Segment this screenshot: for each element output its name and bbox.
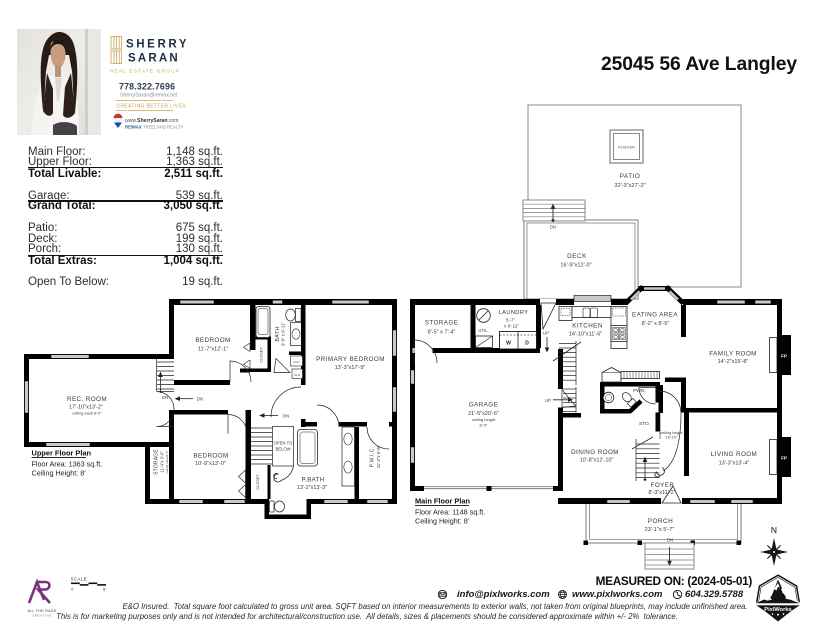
svg-text:DN: DN xyxy=(197,397,203,402)
svg-text:DN: DN xyxy=(283,414,289,419)
svg-text:8'-5" x 7'-4": 8'-5" x 7'-4" xyxy=(428,330,456,336)
svg-text:DN: DN xyxy=(667,538,673,543)
svg-text:16'-10": 16'-10" xyxy=(666,436,678,440)
svg-text:N: N xyxy=(771,525,777,535)
svg-text:D: D xyxy=(525,341,529,347)
svg-text:0': 0' xyxy=(71,588,74,592)
svg-text:FP: FP xyxy=(781,354,787,359)
svg-text:OPEN TO: OPEN TO xyxy=(274,441,293,446)
svg-text:LAUNDRY: LAUNDRY xyxy=(499,310,529,316)
svg-text:LIVING ROOM: LIVING ROOM xyxy=(711,451,757,458)
svg-text:P.W.I.C.: P.W.I.C. xyxy=(370,447,376,468)
svg-text:FOYER: FOYER xyxy=(651,482,675,489)
svg-text:BEDROOM: BEDROOM xyxy=(193,453,228,460)
svg-text:11'-3"x 5'-8": 11'-3"x 5'-8" xyxy=(376,445,381,468)
svg-text:Upper Floor Plan: Upper Floor Plan xyxy=(32,449,92,458)
svg-text:8': 8' xyxy=(103,588,106,592)
svg-text:PLANTER: PLANTER xyxy=(618,146,635,150)
svg-text:8'-3"x11'-2": 8'-3"x11'-2" xyxy=(648,490,675,496)
svg-text:DN: DN xyxy=(550,225,556,230)
svg-text:Ceiling Height: 8': Ceiling Height: 8' xyxy=(415,517,470,526)
svg-text:14'-2"x15'-8": 14'-2"x15'-8" xyxy=(718,359,749,365)
svg-text:11'-4"x 3'-0": 11'-4"x 3'-0" xyxy=(160,451,165,473)
svg-text:KITCHEN: KITCHEN xyxy=(572,323,602,330)
svg-text:EATING AREA: EATING AREA xyxy=(632,312,678,319)
svg-text:DN: DN xyxy=(162,395,168,400)
svg-text:REC. ROOM: REC. ROOM xyxy=(67,396,107,403)
svg-text:23'-1"x 5'-7": 23'-1"x 5'-7" xyxy=(645,527,675,533)
svg-text:W: W xyxy=(506,341,511,347)
svg-text:STORAGE: STORAGE xyxy=(425,320,458,327)
svg-text:14'-10"x11'-6": 14'-10"x11'-6" xyxy=(569,332,602,338)
svg-text:CLOSET: CLOSET xyxy=(260,347,264,363)
svg-text:9'-9" x 6'-11": 9'-9" x 6'-11" xyxy=(281,322,286,346)
svg-text:BELOW: BELOW xyxy=(275,447,290,452)
svg-text:DECK: DECK xyxy=(567,253,587,260)
svg-text:ALL THE RAGE: ALL THE RAGE xyxy=(27,609,56,613)
svg-text:P.BATH: P.BATH xyxy=(302,477,325,484)
svg-text:ceiling vault 8'-0": ceiling vault 8'-0" xyxy=(165,450,169,473)
svg-text:CLO: CLO xyxy=(294,373,301,377)
svg-text:PWD.: PWD. xyxy=(633,388,646,394)
svg-text:13'-3"x17'-9": 13'-3"x17'-9" xyxy=(335,365,366,371)
svg-text:SCALE: SCALE xyxy=(71,577,87,582)
svg-text:DINING ROOM: DINING ROOM xyxy=(571,449,619,456)
svg-text:STO.: STO. xyxy=(639,421,650,427)
svg-text:PORCH: PORCH xyxy=(648,518,674,525)
svg-text:ceiling height: ceiling height xyxy=(472,417,496,422)
svg-text:PixlWorks: PixlWorks xyxy=(764,607,791,613)
svg-text:16'-9"x12'-0": 16'-9"x12'-0" xyxy=(560,263,591,269)
svg-text:Floor Area: 1148 sq.ft.: Floor Area: 1148 sq.ft. xyxy=(415,508,485,517)
svg-text:UP: UP xyxy=(543,331,549,336)
svg-text:x 6'-11": x 6'-11" xyxy=(504,324,519,329)
svg-text:13'-3"x13'-4": 13'-3"x13'-4" xyxy=(719,461,750,467)
svg-text:11'-7"x12'-1": 11'-7"x12'-1" xyxy=(198,347,228,353)
svg-text:FAMILY ROOM: FAMILY ROOM xyxy=(709,351,757,358)
svg-text:10'-8"x12'-10": 10'-8"x12'-10" xyxy=(580,458,614,464)
svg-text:UP: UP xyxy=(545,398,551,403)
svg-text:BEDROOM: BEDROOM xyxy=(195,337,230,344)
svg-text:ceiling vault 8'-0": ceiling vault 8'-0" xyxy=(72,411,102,416)
svg-text:10'-9"x13'-0": 10'-9"x13'-0" xyxy=(195,461,226,467)
svg-text:UTIL.: UTIL. xyxy=(478,328,488,333)
svg-text:5'-7": 5'-7" xyxy=(506,318,516,323)
svg-text:CLOSET: CLOSET xyxy=(256,474,260,490)
svg-text:Floor Area: 1363 sq.ft.: Floor Area: 1363 sq.ft. xyxy=(32,460,103,469)
svg-text:Main Floor Plan: Main Floor Plan xyxy=(415,497,471,506)
svg-text:13'-2"x13'-3": 13'-2"x13'-3" xyxy=(297,485,327,491)
svg-text:PATIO: PATIO xyxy=(620,173,641,180)
svg-text:32'-3"x27'-2": 32'-3"x27'-2" xyxy=(614,183,645,189)
svg-text:CLO: CLO xyxy=(293,360,300,364)
svg-text:Ceiling Height: 8': Ceiling Height: 8' xyxy=(32,469,87,478)
svg-text:FP: FP xyxy=(781,456,787,461)
svg-text:CREATIVE: CREATIVE xyxy=(32,614,52,618)
svg-text:GARAGE: GARAGE xyxy=(469,402,498,409)
svg-text:8'-2" x 8'-5": 8'-2" x 8'-5" xyxy=(642,321,670,327)
svg-text:PRIMARY BEDROOM: PRIMARY BEDROOM xyxy=(316,356,385,363)
svg-text:8'-3": 8'-3" xyxy=(480,423,489,428)
